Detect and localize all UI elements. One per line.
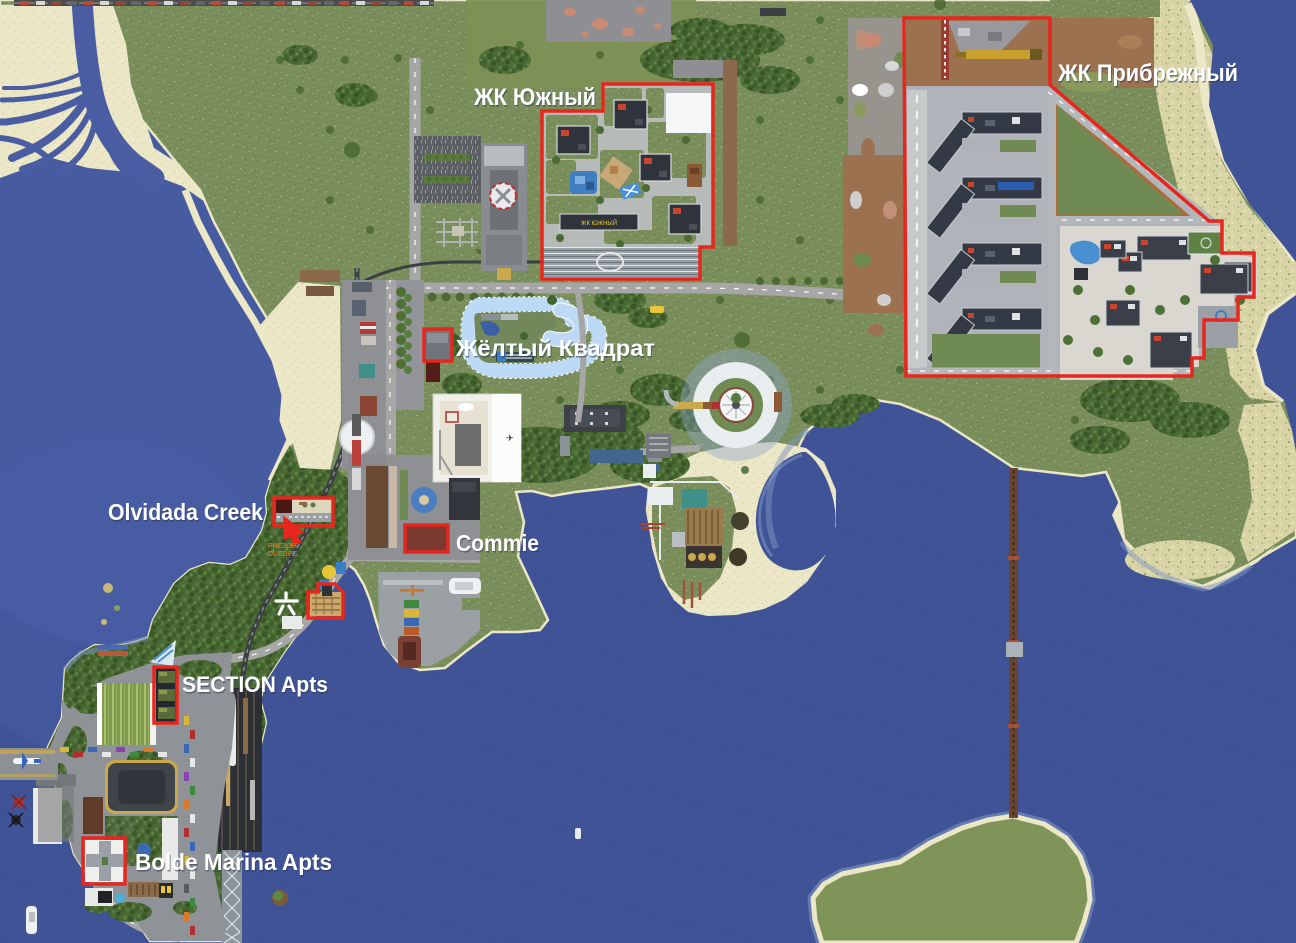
svg-text:SECTION Apts: SECTION Apts: [182, 672, 328, 697]
svg-text:Olvidada Creek: Olvidada Creek: [108, 499, 263, 525]
svg-text:Bolde Marina Apts: Bolde Marina Apts: [135, 849, 332, 875]
svg-text:✈: ✈: [506, 433, 514, 443]
svg-text:PHE3OH: PHE3OH: [268, 543, 297, 550]
svg-text:DUEBPE: DUEBPE: [268, 551, 298, 558]
svg-text:Жёлтый Квадрат: Жёлтый Квадрат: [455, 335, 655, 361]
svg-text:ЖК ЮЖНЫЙ: ЖК ЮЖНЫЙ: [581, 219, 617, 227]
svg-text:ЖК Прибрежный: ЖК Прибрежный: [1057, 60, 1238, 87]
svg-text:Commie: Commie: [456, 530, 539, 556]
svg-text:ЖК Южный: ЖК Южный: [473, 84, 596, 111]
